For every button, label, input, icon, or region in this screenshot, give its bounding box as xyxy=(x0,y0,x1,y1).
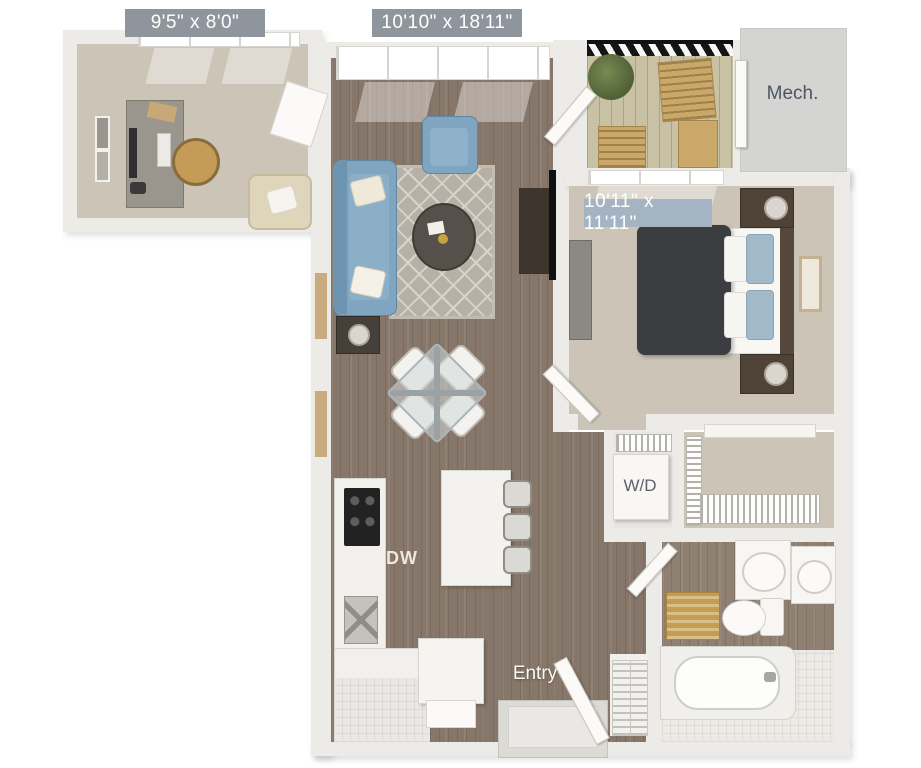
living-wall-panel xyxy=(314,272,328,340)
table-lamp xyxy=(348,324,370,346)
entry-label: Entry xyxy=(500,662,570,686)
office-dimensions-label: 9'5" x 8'0" xyxy=(125,9,265,37)
sofa-back xyxy=(333,160,347,314)
utility-louver-door-2 xyxy=(630,660,648,736)
bar-stool xyxy=(503,480,532,508)
bath-top-wall xyxy=(604,528,850,542)
dishwasher-label: DW xyxy=(378,546,426,570)
balcony-chair-2 xyxy=(598,126,646,168)
east-wall xyxy=(834,168,850,542)
coffee-table-bowl xyxy=(438,234,448,244)
bath-right-wall xyxy=(834,542,850,742)
living-light-patch xyxy=(355,82,435,122)
washer-dryer-label: W/D xyxy=(613,454,667,518)
closet-wire-shelf-bottom xyxy=(700,494,820,524)
keyboard xyxy=(157,133,171,167)
desk-monitor xyxy=(129,128,137,178)
vanity-sink-2 xyxy=(797,560,832,594)
tv-console xyxy=(519,188,549,274)
bed-pillow-white-2 xyxy=(724,292,748,338)
office-light-patch-2 xyxy=(222,48,293,84)
stove xyxy=(344,488,380,546)
closet-top-shelf xyxy=(704,424,816,438)
kitchen-corner-floor xyxy=(334,678,430,742)
entry-closet xyxy=(418,638,484,704)
balcony-chair xyxy=(657,58,716,122)
bedroom-window xyxy=(588,170,724,185)
tub-faucet xyxy=(764,672,776,682)
mech-room-label: Mech. xyxy=(740,28,845,160)
bed-duvet xyxy=(637,225,731,355)
bar-stool-3 xyxy=(503,546,532,574)
bed-pillow-blue-2 xyxy=(746,290,774,340)
hallway-floor xyxy=(553,432,604,542)
bar-stool-2 xyxy=(503,513,532,541)
floor-plan-canvas: DW Entry W/D Mech. 9'5" x 8'0" xyxy=(0,0,921,768)
balcony-table xyxy=(678,120,718,168)
bedside-lamp xyxy=(764,196,788,220)
bed-pillow-blue xyxy=(746,234,774,284)
living-wall-panel-2 xyxy=(314,390,328,458)
bedroom-dimensions-label: 10'11" x 11'11" xyxy=(584,199,712,227)
kitchen-island xyxy=(441,470,511,586)
tv xyxy=(549,170,556,280)
office-light-patch xyxy=(146,48,215,84)
wall-art xyxy=(95,116,110,150)
armchair-seat xyxy=(430,128,468,166)
bedroom-dresser xyxy=(569,240,592,340)
bed-headboard xyxy=(780,220,794,360)
bathtub xyxy=(674,656,780,710)
living-window xyxy=(336,46,550,80)
vanity-sink xyxy=(742,552,786,592)
entry-closet-step xyxy=(426,700,476,728)
mousepad xyxy=(130,182,146,194)
desk-chair xyxy=(172,138,220,186)
bed-pillow-white xyxy=(724,236,748,282)
kitchen-sink xyxy=(344,596,378,644)
living-room-dimensions-label: 10'10" x 18'11" xyxy=(372,9,522,37)
toilet-bowl xyxy=(722,600,766,636)
wd-wire-shelf xyxy=(616,434,672,452)
bath-mat xyxy=(666,592,720,640)
bedside-lamp-2 xyxy=(764,362,788,386)
wall-art-2 xyxy=(95,150,110,182)
utility-louver-door xyxy=(612,660,631,736)
bedroom-wall-art xyxy=(799,256,822,312)
